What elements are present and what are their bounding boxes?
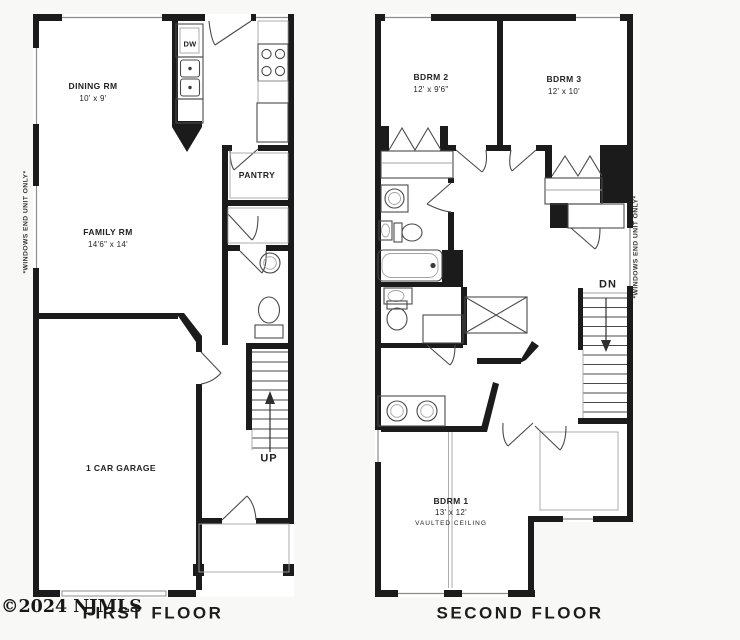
room-dims-bdrm2: 12' x 9'6" xyxy=(413,86,448,94)
side-note-first-floor: *WINDOWS END UNIT ONLY* xyxy=(24,171,31,274)
room-note-bdrm1: VAULTED CEILING xyxy=(415,521,487,528)
room-label-bdrm3: BDRM 3 xyxy=(547,75,582,84)
stairs-up-label: UP xyxy=(260,454,277,465)
second-floor-plan xyxy=(375,14,633,597)
room-dims-family: 14'6" x 14' xyxy=(88,241,128,249)
floorplan-page: DINING RM 10' x 9' FAMILY RM 14'6" x 14'… xyxy=(0,0,740,640)
room-dims-bdrm3: 12' x 10' xyxy=(548,88,580,96)
side-note-second-floor: *WINDOWS END UNIT ONLY* xyxy=(634,196,641,299)
first-floor-plan xyxy=(33,14,294,598)
dishwasher-label: DW xyxy=(184,40,197,48)
room-dims-dining: 10' x 9' xyxy=(79,95,106,103)
mls-watermark: ©2024 NJMLS xyxy=(1,597,142,617)
room-label-family: FAMILY RM xyxy=(83,228,132,237)
floor-plan-canvas xyxy=(0,0,740,640)
second-floor-title: SECOND FLOOR xyxy=(437,605,604,622)
room-label-bdrm2: BDRM 2 xyxy=(414,73,449,82)
room-label-pantry: PANTRY xyxy=(239,171,275,180)
garage-door-icon xyxy=(62,591,166,596)
room-dims-bdrm1: 13' x 12' xyxy=(435,509,467,517)
room-label-bdrm1: BDRM 1 xyxy=(434,497,469,506)
room-label-garage: 1 CAR GARAGE xyxy=(86,464,156,473)
stairs-down-label: DN xyxy=(599,280,617,291)
room-label-dining: DINING RM xyxy=(69,82,118,91)
